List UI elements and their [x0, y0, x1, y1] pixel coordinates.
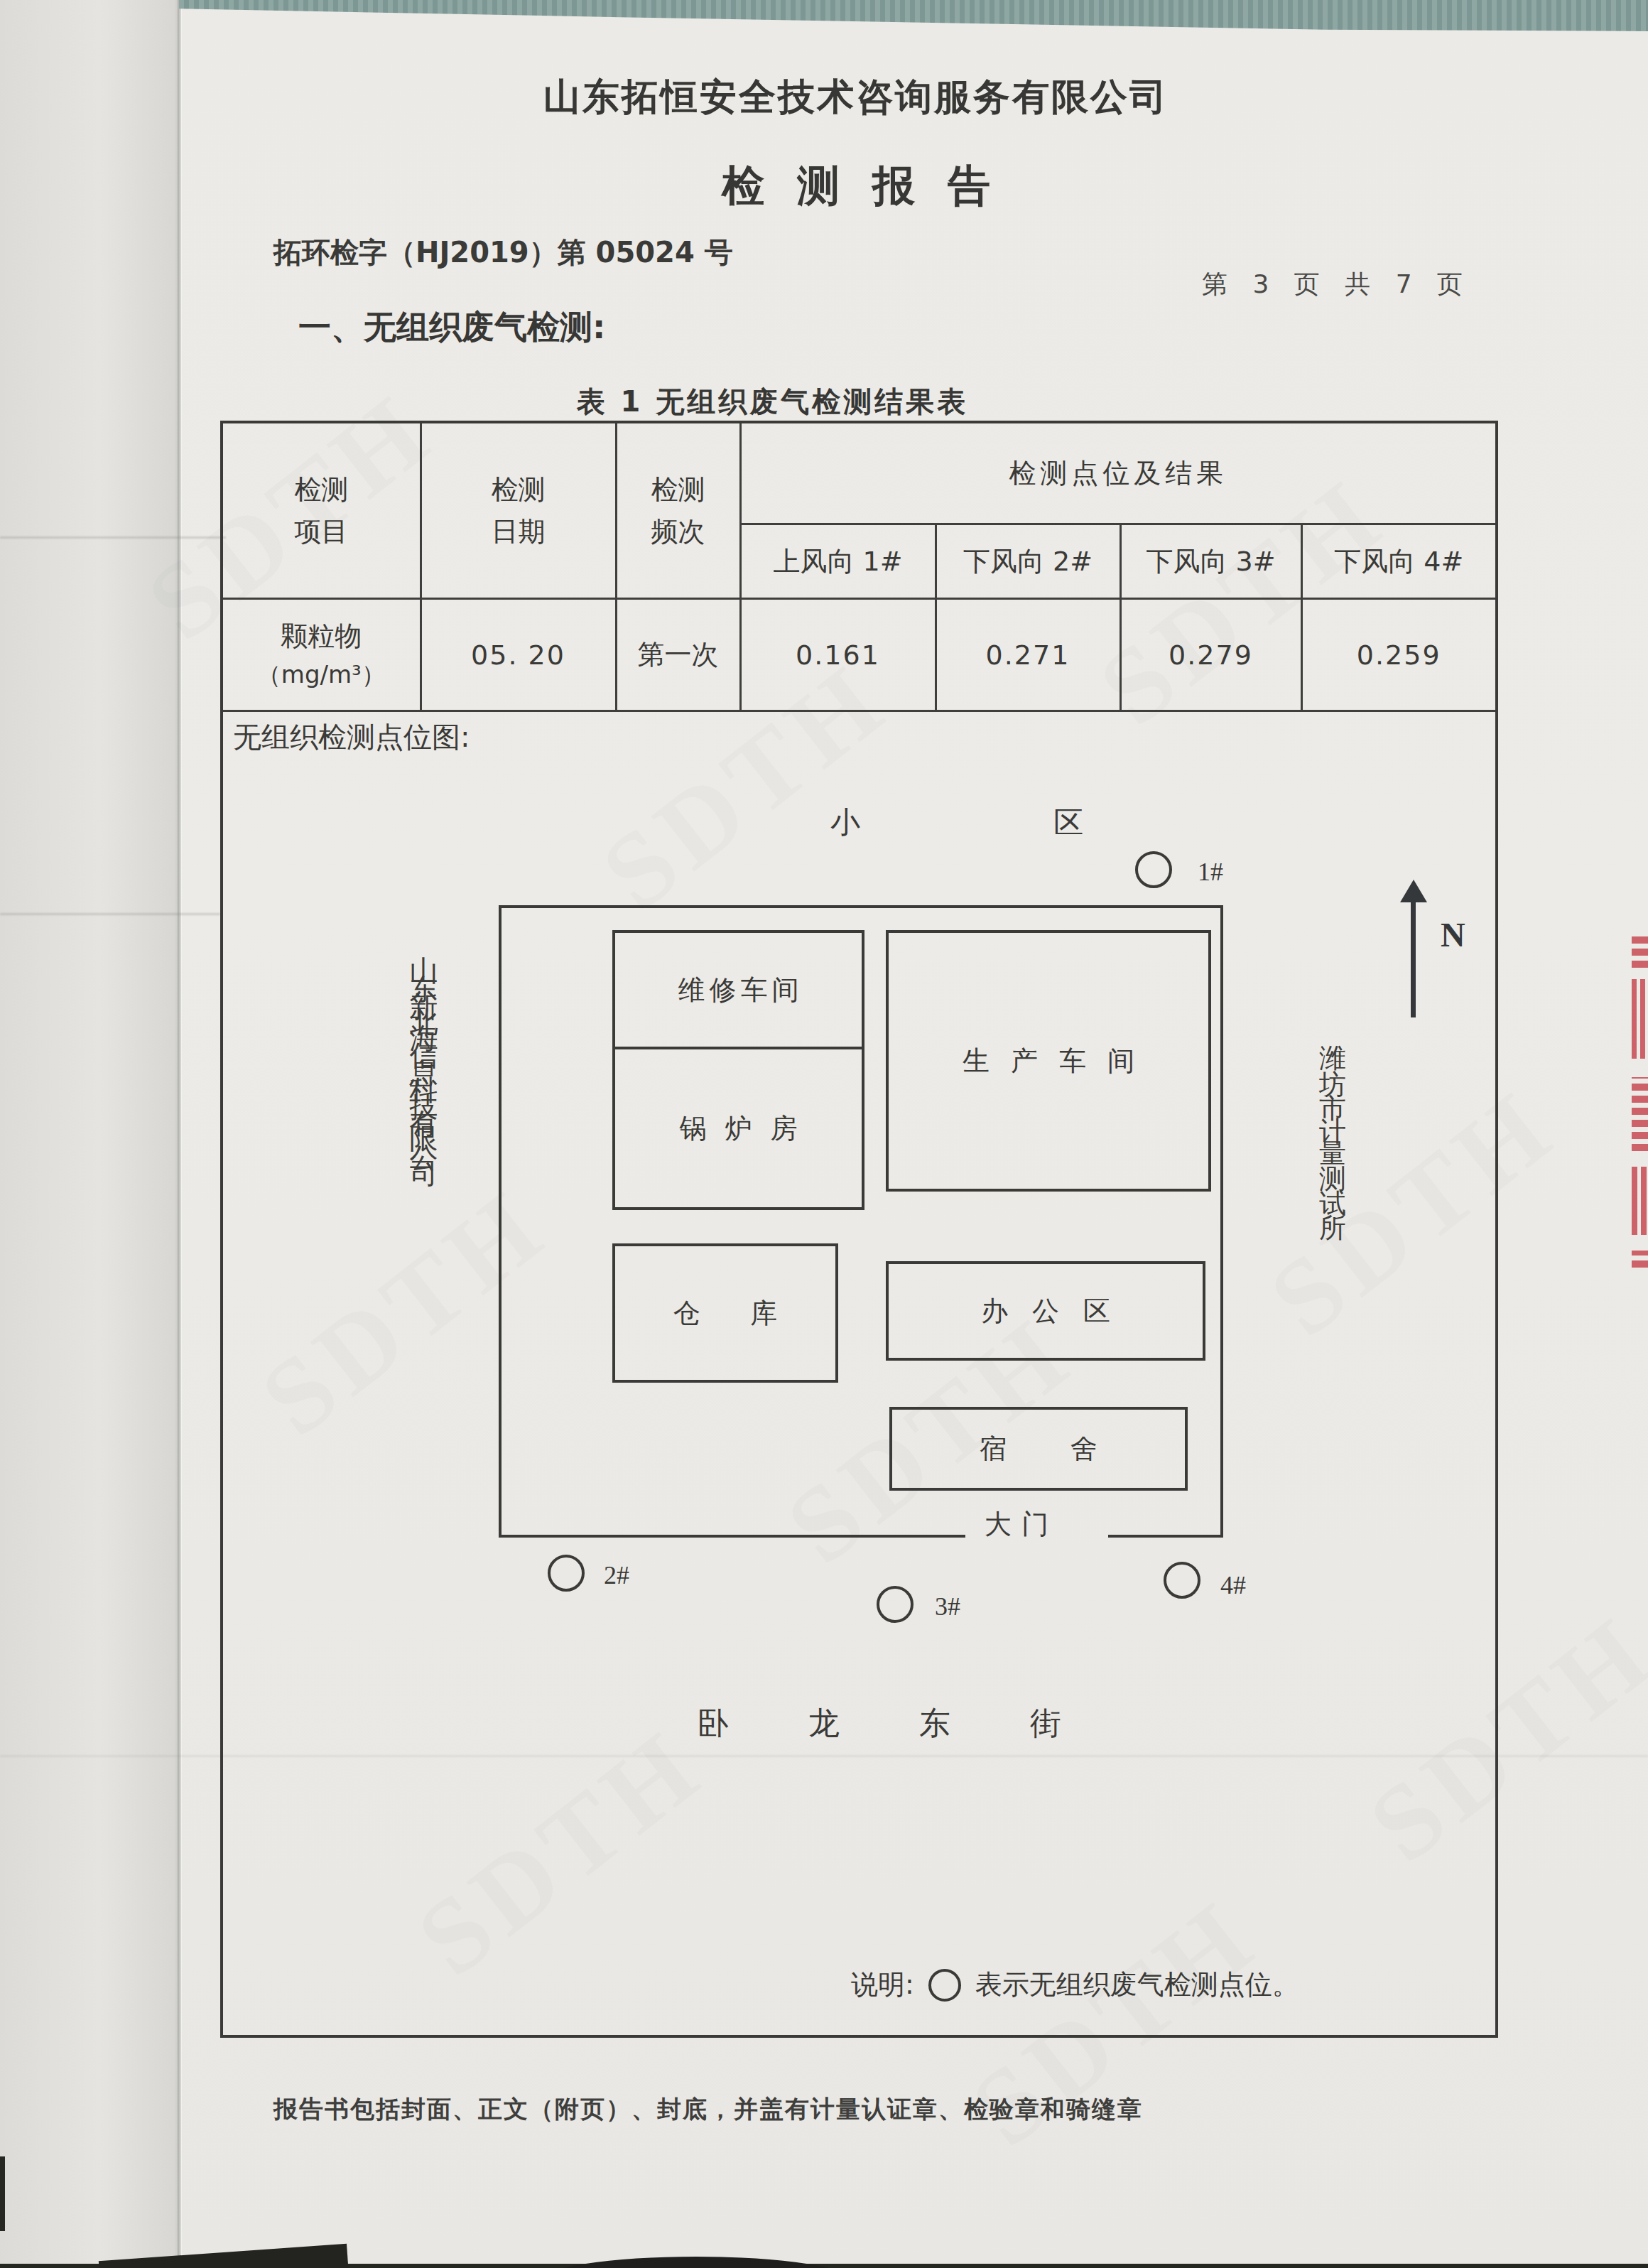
building-label: 办公区 — [981, 1293, 1134, 1329]
detection-point-2-icon — [548, 1555, 585, 1592]
building-boiler-room: 锅炉房 — [612, 1047, 864, 1210]
cell-date: 05. 20 — [421, 599, 616, 711]
seal-stamp-fragment — [1632, 1077, 1648, 1151]
legend-label: 说明: — [851, 1967, 914, 2003]
header-item-label: 检测项目 — [290, 469, 352, 553]
header-cell-upwind-1: 上风向 1# — [740, 524, 936, 599]
header-cell-date: 检测日期 — [421, 422, 616, 599]
building-office-area: 办公区 — [886, 1261, 1205, 1361]
cell-frequency: 第一次 — [616, 599, 740, 711]
header-cell-downwind-4: 下风向 4# — [1301, 524, 1497, 599]
company-name-heading: 山东拓恒安全技术咨询服务有限公司 — [398, 72, 1314, 122]
cell-item: 颗粒物 （mg/m³） — [222, 599, 421, 711]
diagram-section-label: 无组织检测点位图: — [233, 718, 470, 757]
site-diagram: 无组织检测点位图: 小区 1# 大门 维修车间 锅炉房 生产车间 仓库 办公区 … — [223, 712, 1495, 2035]
detection-point-3-label: 3# — [935, 1592, 960, 1621]
seal-stamp-fragment — [1632, 979, 1648, 1059]
detection-point-1-icon — [1135, 851, 1172, 888]
header-cell-item: 检测项目 — [222, 422, 421, 599]
gate-label: 大门 — [985, 1506, 1058, 1543]
detection-point-1-label: 1# — [1198, 857, 1223, 887]
cell-value-1: 0.161 — [740, 599, 936, 711]
building-label: 宿舍 — [980, 1431, 1161, 1467]
building-label: 生产车间 — [963, 1043, 1156, 1079]
legend: 说明: 表示无组织废气检测点位。 — [851, 1967, 1299, 2003]
street-text: 卧龙东街 — [698, 1705, 1141, 1741]
north-arrow-icon — [1411, 898, 1416, 1017]
paper-folded-edge — [0, 0, 181, 2264]
report-title-text: 检测报告 — [722, 161, 1023, 210]
seal-stamp-fragment — [1632, 1251, 1648, 1268]
page-indicator: 第 3 页 共 7 页 — [1202, 267, 1471, 302]
north-label: N — [1441, 915, 1465, 954]
item-name: 颗粒物 — [223, 618, 420, 654]
item-unit: （mg/m³） — [223, 659, 420, 691]
paper-fold-line — [178, 0, 182, 2264]
results-table: 检测项目 检测日期 检测频次 检测点位及结果 上风向 1# 下风向 2# 下风向… — [220, 421, 1498, 2038]
header-cell-points-group: 检测点位及结果 — [740, 422, 1497, 524]
header-cell-frequency: 检测频次 — [616, 422, 740, 599]
legend-circle-icon — [928, 1969, 961, 2002]
table-caption: 表 1 无组织废气检测结果表 — [220, 382, 1325, 421]
footer-note: 报告书包括封面、正文（附页）、封底，并盖有计量认证章、检验章和骑缝章 — [273, 2093, 1143, 2126]
detection-point-4-icon — [1164, 1562, 1200, 1599]
header-cell-downwind-2: 下风向 2# — [936, 524, 1120, 599]
building-label: 维修车间 — [678, 972, 803, 1008]
legend-text: 表示无组织废气检测点位。 — [975, 1967, 1299, 2003]
report-title: 检测报告 — [398, 158, 1314, 215]
header-cell-downwind-3: 下风向 3# — [1120, 524, 1301, 599]
street-label: 卧龙东街 — [698, 1702, 1061, 1744]
diagram-cell: 无组织检测点位图: 小区 1# 大门 维修车间 锅炉房 生产车间 仓库 办公区 … — [222, 711, 1497, 2037]
building-label: 仓库 — [673, 1295, 827, 1332]
seal-stamp-fragment — [1632, 936, 1648, 968]
seal-stamp-fragments — [1628, 936, 1648, 1270]
paper-crease — [0, 913, 220, 915]
building-maintenance-workshop: 维修车间 — [612, 930, 864, 1049]
boundary-segment — [499, 1535, 965, 1538]
neighbor-company-vertical-label: 山东新北海信息科技有限公司 — [405, 934, 444, 1155]
detection-point-4-label: 4# — [1220, 1570, 1246, 1600]
page-shadow — [0, 2156, 5, 2231]
scanned-report-page: SDTH SDTH SDTH SDTH SDTH SDTH SDTH SDTH … — [0, 0, 1648, 2268]
detection-point-2-label: 2# — [604, 1560, 629, 1590]
cell-value-4: 0.259 — [1301, 599, 1497, 711]
table-row: 颗粒物 （mg/m³） 05. 20 第一次 0.161 0.271 0.279… — [222, 599, 1497, 711]
building-dormitory: 宿舍 — [889, 1407, 1188, 1491]
boundary-segment — [1108, 1535, 1223, 1538]
detection-point-3-icon — [877, 1586, 914, 1623]
header-date-label: 检测日期 — [487, 469, 550, 553]
section-heading: 一、无组织废气检测: — [298, 306, 605, 350]
cell-value-3: 0.279 — [1120, 599, 1301, 711]
residential-area-text: 小区 — [830, 805, 1276, 840]
north-arrow-head-icon — [1400, 880, 1427, 902]
building-label: 锅炉房 — [680, 1111, 816, 1147]
building-warehouse: 仓库 — [612, 1243, 838, 1383]
report-number: 拓环检字（HJ2019）第 05024 号 — [273, 233, 733, 272]
neighbor-org-vertical-label: 潍坊市计量测试所 — [1314, 1023, 1350, 1216]
cell-value-2: 0.271 — [936, 599, 1120, 711]
seal-stamp-fragment — [1632, 1167, 1648, 1235]
residential-area-label: 小区 — [830, 803, 1083, 843]
building-production-workshop: 生产车间 — [886, 930, 1211, 1192]
header-frequency-label: 检测频次 — [647, 469, 710, 553]
